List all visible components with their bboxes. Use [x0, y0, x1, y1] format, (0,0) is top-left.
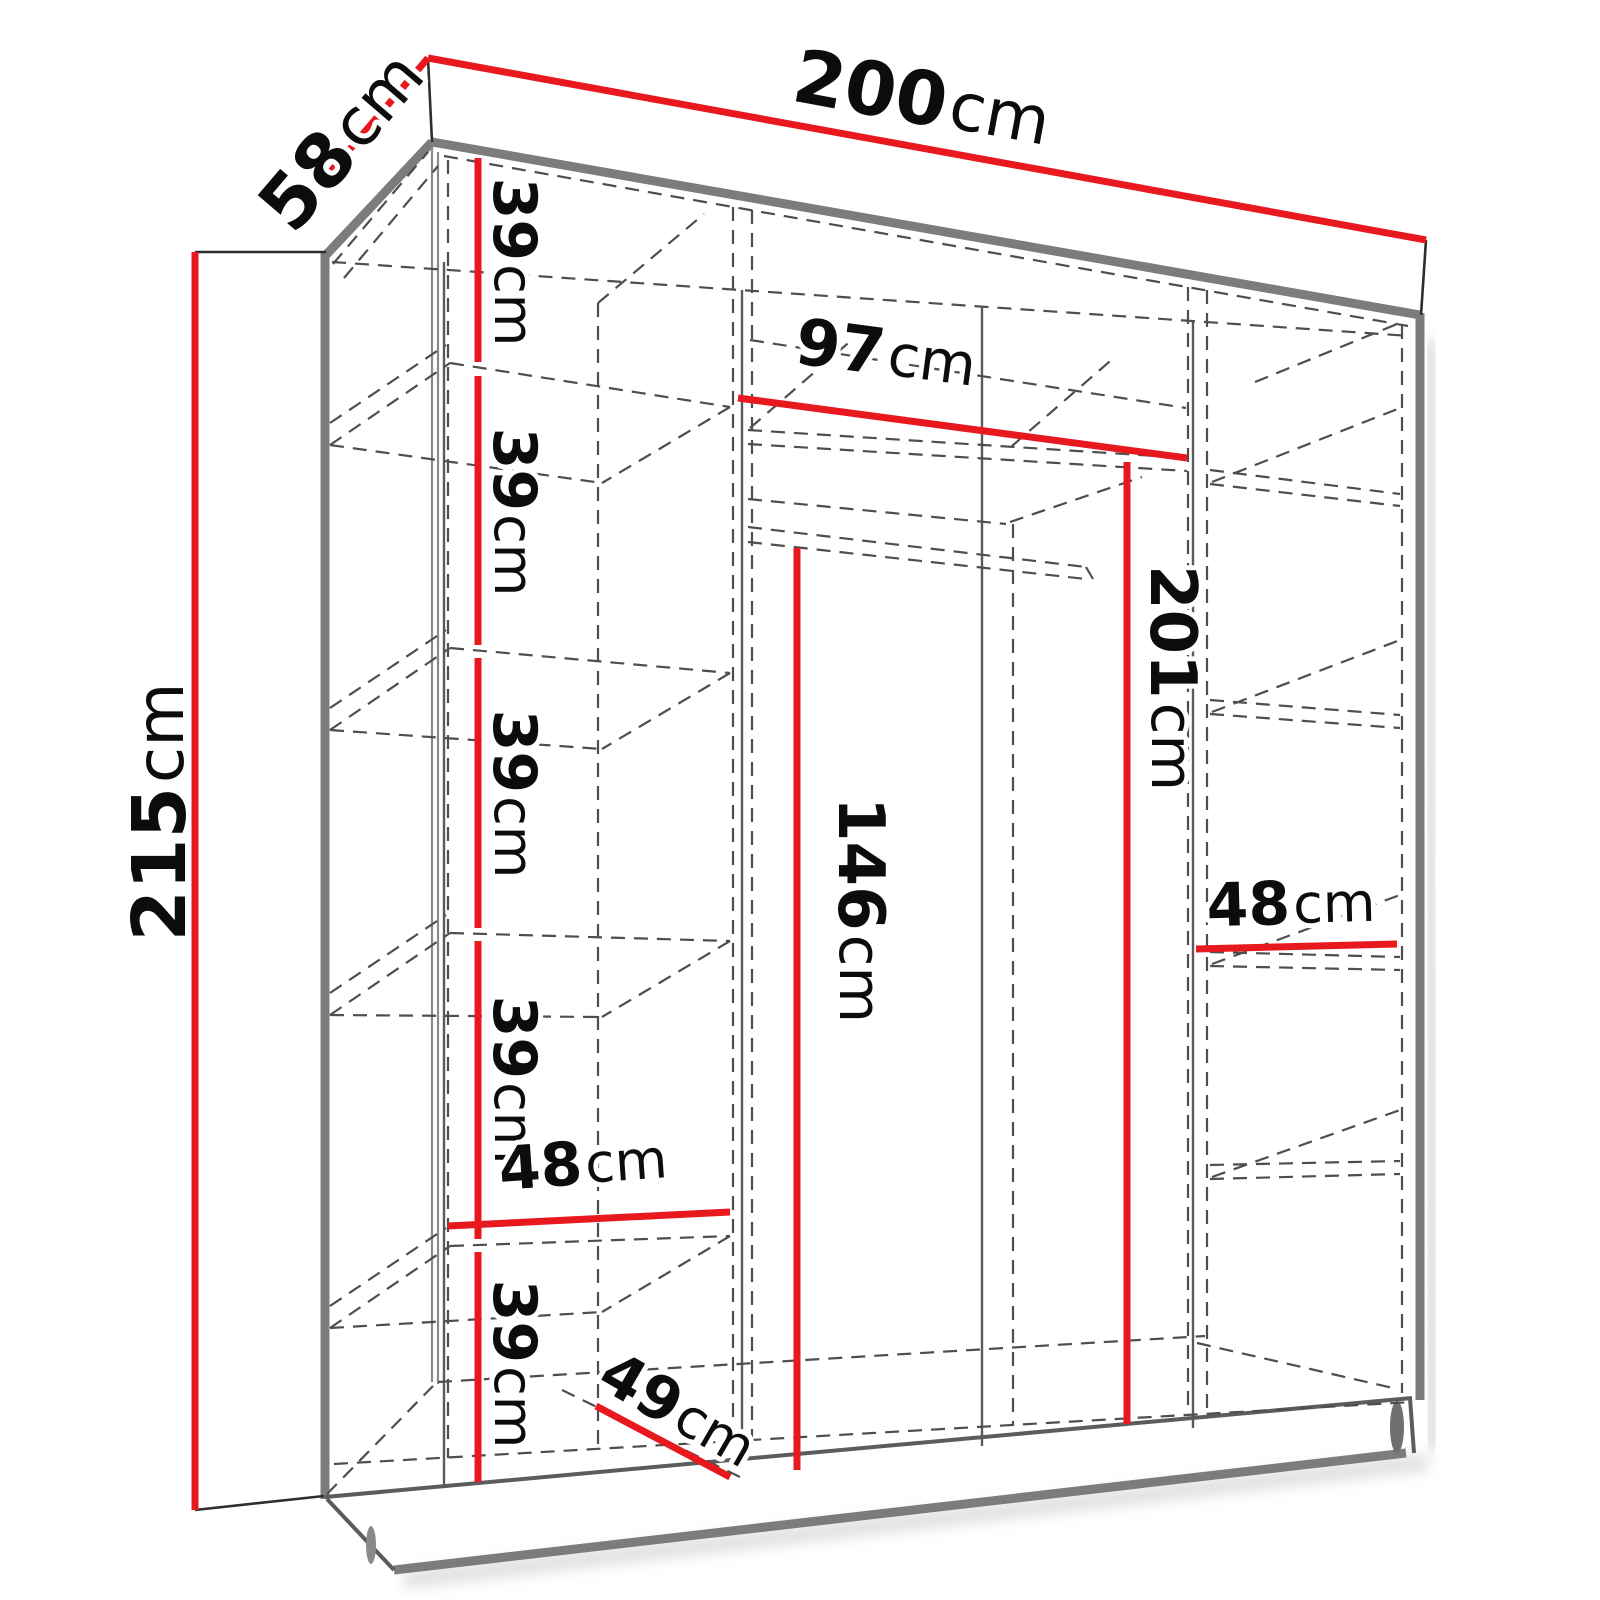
dim-line-hanging-width — [738, 398, 1187, 458]
plinth-bottom-edge — [394, 1453, 1406, 1570]
label-shelf-spacing-2: 39cm — [479, 428, 549, 597]
label-overall-depth: 58cm — [242, 34, 442, 248]
label-hanging-height: 146cm — [823, 797, 897, 1023]
dimension-lines — [195, 58, 1426, 1510]
label-shelf-spacing-1: 39cm — [479, 178, 549, 347]
dimension-ticks — [195, 58, 1426, 1510]
dim-line-right-shelf — [1196, 944, 1397, 949]
label-shelf-spacing-5: 39cm — [479, 1280, 549, 1449]
wardrobe-dimension-diagram: 200cm 58cm 215cm 39cm 39cm 39cm 39cm 39c… — [0, 0, 1600, 1600]
drop-shadow — [404, 340, 1434, 1580]
label-left-shelf-width: 48cm — [496, 1123, 669, 1205]
shelf — [1210, 640, 1400, 728]
top-back-edge — [432, 142, 1420, 315]
right-column-shelves — [1210, 408, 1400, 1179]
label-shelf-spacing-3: 39cm — [479, 710, 549, 879]
label-hanging-width: 97cm — [791, 305, 981, 402]
label-right-shelf-width: 48cm — [1206, 867, 1377, 941]
left-foot — [366, 1526, 376, 1564]
label-overall-height: 215cm — [117, 682, 203, 941]
hanging-rod — [748, 477, 1142, 579]
shelf — [1210, 1110, 1400, 1179]
diagram-canvas: 200cm 58cm 215cm 39cm 39cm 39cm 39cm 39c… — [0, 0, 1600, 1600]
shelf — [1210, 408, 1400, 506]
dim-line-left-shelf — [448, 1212, 730, 1226]
right-foot — [1390, 1401, 1404, 1453]
plinth-left-edge — [327, 1499, 394, 1570]
plinth-right-edge — [1410, 1398, 1414, 1453]
label-interior-height: 201cm — [1135, 565, 1209, 791]
